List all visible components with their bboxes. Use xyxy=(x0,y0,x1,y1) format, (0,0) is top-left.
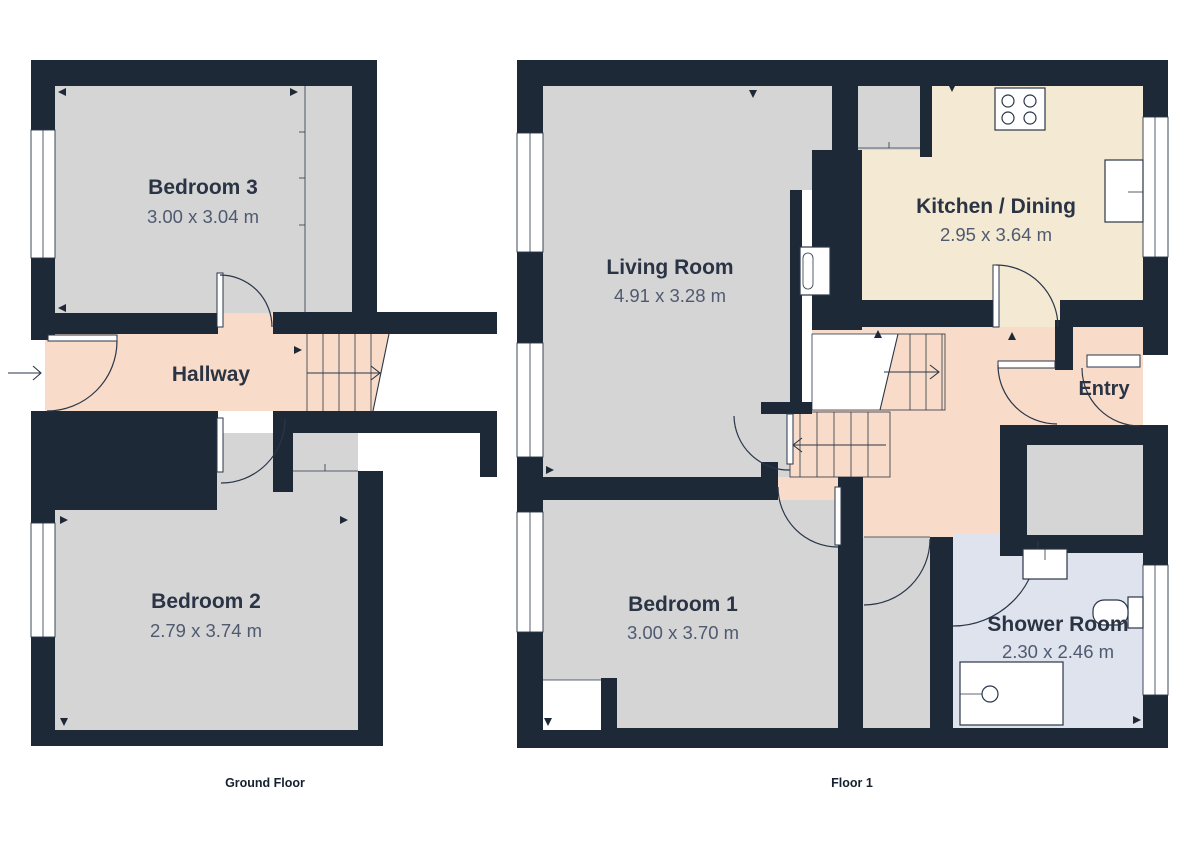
living-room-window-bottom xyxy=(517,343,543,457)
bedroom3-dims: 3.00 x 3.04 m xyxy=(147,206,259,227)
living-room-floor xyxy=(543,86,790,477)
bedroom1-dims: 3.00 x 3.70 m xyxy=(627,622,739,643)
kitchen-sink-unit xyxy=(1105,160,1143,222)
shower-room-window xyxy=(1143,565,1168,695)
bedroom1-window xyxy=(517,512,543,632)
kitchen-door-threshold xyxy=(997,300,1060,327)
floor-caption-1: Floor 1 xyxy=(831,776,873,790)
bedroom2-dims: 2.79 x 3.74 m xyxy=(150,620,262,641)
hob-icon xyxy=(995,88,1045,130)
shower-room-dims: 2.30 x 2.46 m xyxy=(1002,641,1114,662)
bedroom1-recess xyxy=(543,678,617,730)
kitchen-cupboard-floor xyxy=(858,86,920,150)
bedroom2-window xyxy=(31,523,55,637)
floorplan-page: Bedroom 3 3.00 x 3.04 m Hallway Bedroom … xyxy=(0,0,1200,848)
floorplan-drawing: Bedroom 3 3.00 x 3.04 m Hallway Bedroom … xyxy=(0,0,1200,848)
ground-floor-plan: Bedroom 3 3.00 x 3.04 m Hallway Bedroom … xyxy=(8,60,497,790)
bedroom2-label: Bedroom 2 xyxy=(151,590,261,613)
bedroom3-floor xyxy=(55,86,352,313)
bedroom1-label: Bedroom 1 xyxy=(628,593,738,616)
kitchen-dims: 2.95 x 3.64 m xyxy=(940,224,1052,245)
kitchen-floor-left xyxy=(862,150,932,300)
bedroom3-door-threshold xyxy=(218,313,273,334)
bedroom3-window xyxy=(31,130,55,258)
stair-void xyxy=(373,334,480,411)
kitchen-window xyxy=(1143,117,1168,257)
kitchen-label: Kitchen / Dining xyxy=(916,195,1076,218)
living-room-label: Living Room xyxy=(606,256,733,279)
wash-basin xyxy=(1023,549,1067,579)
bedroom1-door-threshold xyxy=(778,477,838,500)
entry-label: Entry xyxy=(1078,378,1130,400)
hallway-label: Hallway xyxy=(172,363,251,386)
entry-floor xyxy=(1073,327,1143,425)
chimney-breast xyxy=(812,150,862,330)
bedroom3-label: Bedroom 3 xyxy=(148,176,258,199)
living-room-window-top xyxy=(517,133,543,252)
corridor-floor xyxy=(863,537,930,728)
floor1-plan: Living Room 4.91 x 3.28 m Kitchen / Dini… xyxy=(517,60,1168,790)
entry-closet-floor xyxy=(1027,445,1143,535)
shower-tray xyxy=(960,662,1063,725)
understairs-closet-floor xyxy=(293,433,358,471)
shower-room-label: Shower Room xyxy=(987,613,1128,636)
living-room-dims: 4.91 x 3.28 m xyxy=(614,285,726,306)
fireplace-recess xyxy=(800,247,830,295)
floor-caption-ground: Ground Floor xyxy=(225,776,305,790)
